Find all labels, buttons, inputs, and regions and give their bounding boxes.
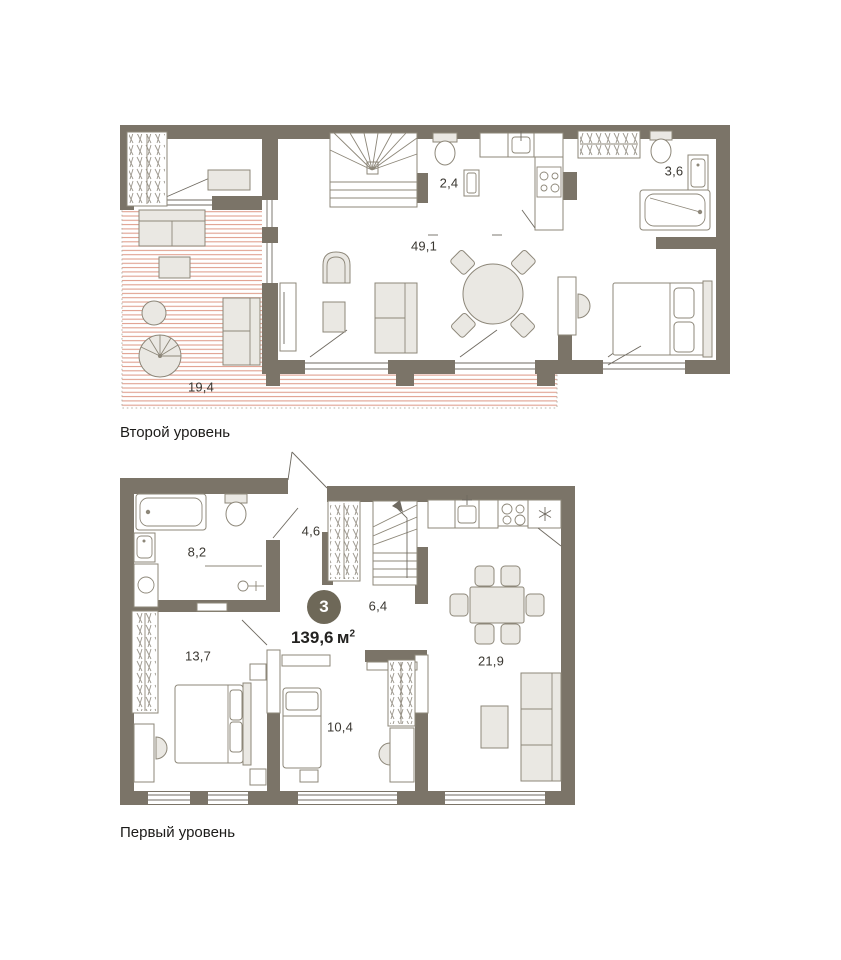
spiral-stairs [139,335,181,377]
door-panel [267,650,280,713]
dresser-tv [558,277,590,335]
room-area-living-1: 21,9 [478,654,504,669]
room-area-bedroom-main: 13,7 [185,649,211,664]
armchair [323,252,350,283]
total-area-label: 139,6 м2 [291,628,355,648]
room-area-terrace: 19,4 [188,380,214,395]
terrace-coffee-table [159,257,190,278]
desk [282,655,330,666]
stove [498,500,528,526]
bathroom-sink [134,533,155,562]
console-table [208,170,250,190]
room-area-bathroom-1: 8,2 [188,545,207,560]
terrace-side-sofa [223,298,260,365]
stairs [330,133,417,207]
wc-sink [464,170,479,196]
total-area-value: 139,6 [291,628,334,647]
living-sofa [521,673,561,781]
shelf [197,603,227,611]
dining-table [450,566,544,644]
bathtub [136,494,206,530]
wardrobe [388,660,415,726]
washing-machine [134,564,158,607]
living-sofa [375,283,417,353]
bathroom-sink [688,155,708,191]
second-level-caption: Второй уровень [120,424,230,441]
fridge [528,500,561,546]
wardrobe [328,501,360,581]
round-dining-table [450,249,537,338]
floorplan-page: Второй уровень Первый уровень 2,4 3,6 49… [0,0,841,960]
kitchen-counter [428,495,498,528]
room-area-hallway: 4,6 [302,524,321,539]
stairs [373,500,417,585]
room-area-bedroom-second: 10,4 [327,720,353,735]
wardrobe [127,132,167,206]
double-bed [175,664,266,785]
room-area-living-2: 49,1 [411,239,437,254]
stove [522,157,563,230]
single-bed [283,688,321,782]
toilet [225,494,247,526]
floorplan-drawing [0,0,841,960]
wardrobe [578,131,640,158]
coffee-table [481,706,508,748]
terrace-round-table [142,301,166,325]
toilet [433,133,457,165]
first-level-caption: Первый уровень [120,824,235,841]
terrace-sofa [139,210,205,246]
bathtub [640,190,710,230]
double-bed [613,281,712,357]
room-area-wc: 2,4 [440,176,459,191]
kitchen-counter [480,131,563,157]
toilet [650,131,672,163]
towel-radiator [205,566,264,591]
total-area-exponent: 2 [349,628,355,639]
room-area-bathroom-2: 3,6 [665,164,684,179]
wardrobe [132,611,158,713]
dresser-tv [134,724,167,782]
second-level-plan [120,125,730,408]
dresser-tv [379,728,414,782]
rooms-count: 3 [319,597,328,617]
entrance-door [288,452,327,488]
tv-sideboard [280,283,296,351]
side-table [323,302,345,332]
room-area-stair-hall: 6,4 [369,599,388,614]
rooms-count-badge: 3 [307,590,341,624]
total-area-unit: м [337,628,350,647]
